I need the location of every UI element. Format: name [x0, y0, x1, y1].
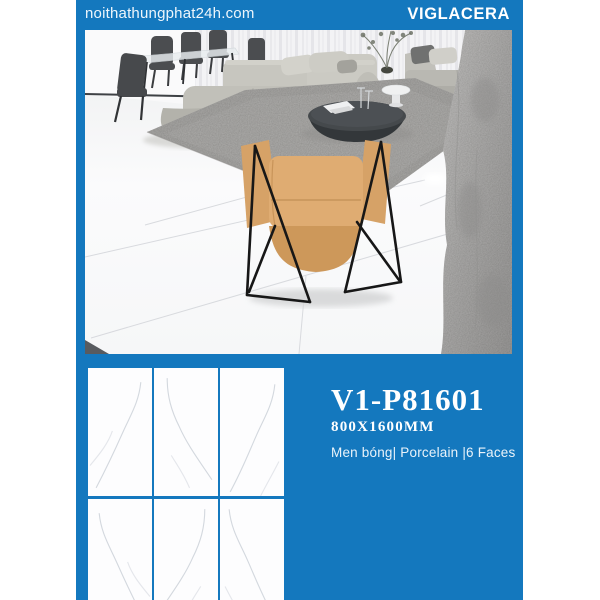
product-info: V1-P81601 800X1600MM Men bóng| Porcelain… — [331, 384, 516, 460]
site-link[interactable]: noithathungphat24h.com — [85, 5, 255, 22]
room-photo — [85, 30, 512, 354]
tile-swatch — [88, 499, 152, 600]
product-size: 800X1600MM — [331, 419, 516, 436]
product-code: V1-P81601 — [331, 384, 516, 415]
tile-swatch — [154, 499, 218, 600]
header-bar: noithathungphat24h.com VIGLACERA — [76, 0, 523, 30]
poster: noithathungphat24h.com VIGLACERA — [0, 0, 600, 600]
tile-swatch-grid — [88, 368, 284, 600]
tile-swatch — [154, 368, 218, 496]
product-specs: Men bóng| Porcelain |6 Faces — [331, 445, 516, 460]
brand-logo: VIGLACERA — [407, 5, 510, 24]
tile-swatch — [88, 368, 152, 496]
tile-swatch — [220, 368, 284, 496]
tile-swatch — [220, 499, 284, 600]
blue-panel: noithathungphat24h.com VIGLACERA — [76, 0, 523, 600]
floor-reflection — [424, 173, 446, 185]
